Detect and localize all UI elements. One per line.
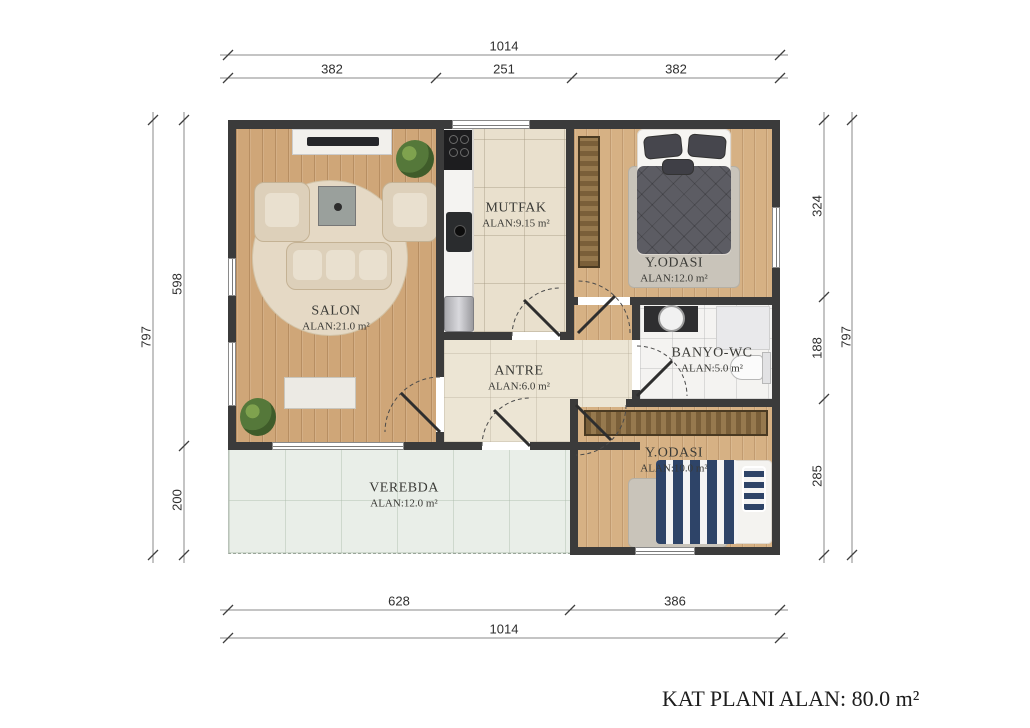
plant-icon <box>240 398 276 436</box>
bed1-duvet <box>637 166 731 254</box>
room-label-banyo: BANYO-WC ALAN:5.0 m² <box>672 346 753 375</box>
coffee-table-decor <box>334 203 342 211</box>
wall <box>566 297 578 305</box>
window <box>635 547 695 555</box>
window <box>272 442 404 450</box>
sink-drain-icon <box>454 225 466 237</box>
room-label-salon: SALON ALAN:21.0 m² <box>302 304 369 333</box>
wall <box>228 442 272 450</box>
room-label-mutfak: MUTFAK ALAN:9.15 m² <box>482 201 549 230</box>
armchair-right <box>382 182 438 242</box>
wall <box>570 547 635 555</box>
wardrobe <box>584 410 768 436</box>
room-label-yodasi-1: Y.ODASI ALAN:12.0 m² <box>640 256 707 285</box>
wall <box>570 399 578 555</box>
room-label-yodasi-2: Y.ODASI ALAN:10.0 m² <box>640 446 707 475</box>
bedroom1-vestibule-floor <box>574 305 632 340</box>
dim-top-seg-2: 251 <box>493 62 515 77</box>
wall <box>436 340 444 377</box>
sofa <box>286 242 392 290</box>
dim-left-seg-2: 200 <box>170 489 185 511</box>
dim-left-total: 797 <box>139 326 154 348</box>
wall <box>530 442 640 450</box>
wall <box>695 547 780 555</box>
wall <box>632 390 640 399</box>
dim-top-seg-3: 382 <box>665 62 687 77</box>
dining-table <box>284 377 356 409</box>
wall <box>630 297 780 305</box>
wall <box>436 432 444 442</box>
window <box>228 258 236 296</box>
wall <box>228 120 236 258</box>
floor-plan-sheet: SALON ALAN:21.0 m² MUTFAK ALAN:9.15 m² Y… <box>0 0 1030 728</box>
burner-icon <box>460 148 469 157</box>
pillow <box>643 133 683 160</box>
pillow <box>687 133 727 159</box>
wall <box>626 399 780 407</box>
wall <box>772 268 780 555</box>
toilet-tank <box>762 352 771 384</box>
wardrobe <box>578 136 600 268</box>
window <box>772 207 780 268</box>
kitchen-sink <box>446 212 472 252</box>
plan-title: KAT PLANI ALAN: 80.0 m² <box>662 686 919 712</box>
plant-icon <box>396 140 434 178</box>
armchair-left <box>254 182 310 242</box>
window <box>228 342 236 406</box>
cooktop <box>444 130 472 170</box>
burner-icon <box>449 148 458 157</box>
tv <box>307 137 379 146</box>
sofa-cushion <box>359 250 387 280</box>
fridge <box>444 296 474 332</box>
wall <box>560 332 574 340</box>
room-label-veranda: VEREBDA ALAN:12.0 m² <box>369 481 439 510</box>
dim-right-seg-1: 324 <box>810 195 825 217</box>
dim-bottom-seg-1: 628 <box>388 594 410 609</box>
dim-right-seg-3: 285 <box>810 465 825 487</box>
dim-top-total: 1014 <box>490 39 519 54</box>
shower <box>716 306 770 350</box>
pillow <box>742 466 766 512</box>
armchair-cushion <box>265 193 299 227</box>
throw-pillow <box>662 159 694 175</box>
wall <box>228 296 236 342</box>
wall <box>632 305 640 340</box>
wall <box>436 332 512 340</box>
sofa-cushion <box>326 250 355 280</box>
bathroom-sink <box>658 305 685 332</box>
sofa-cushion <box>293 250 322 280</box>
armchair-cushion <box>393 193 427 227</box>
wall <box>566 120 574 340</box>
room-label-antre: ANTRE ALAN:6.0 m² <box>488 364 550 393</box>
dim-right-total: 797 <box>839 326 854 348</box>
window <box>452 120 530 129</box>
burner-icon <box>449 135 458 144</box>
dim-top-seg-1: 382 <box>321 62 343 77</box>
dim-left-seg-1: 598 <box>170 273 185 295</box>
dim-bottom-total: 1014 <box>490 622 519 637</box>
dim-bottom-seg-2: 386 <box>664 594 686 609</box>
dim-right-seg-2: 188 <box>810 337 825 359</box>
wall <box>436 120 444 340</box>
burner-icon <box>460 135 469 144</box>
coffee-table <box>318 186 356 226</box>
wall <box>404 442 482 450</box>
wall <box>772 120 780 207</box>
